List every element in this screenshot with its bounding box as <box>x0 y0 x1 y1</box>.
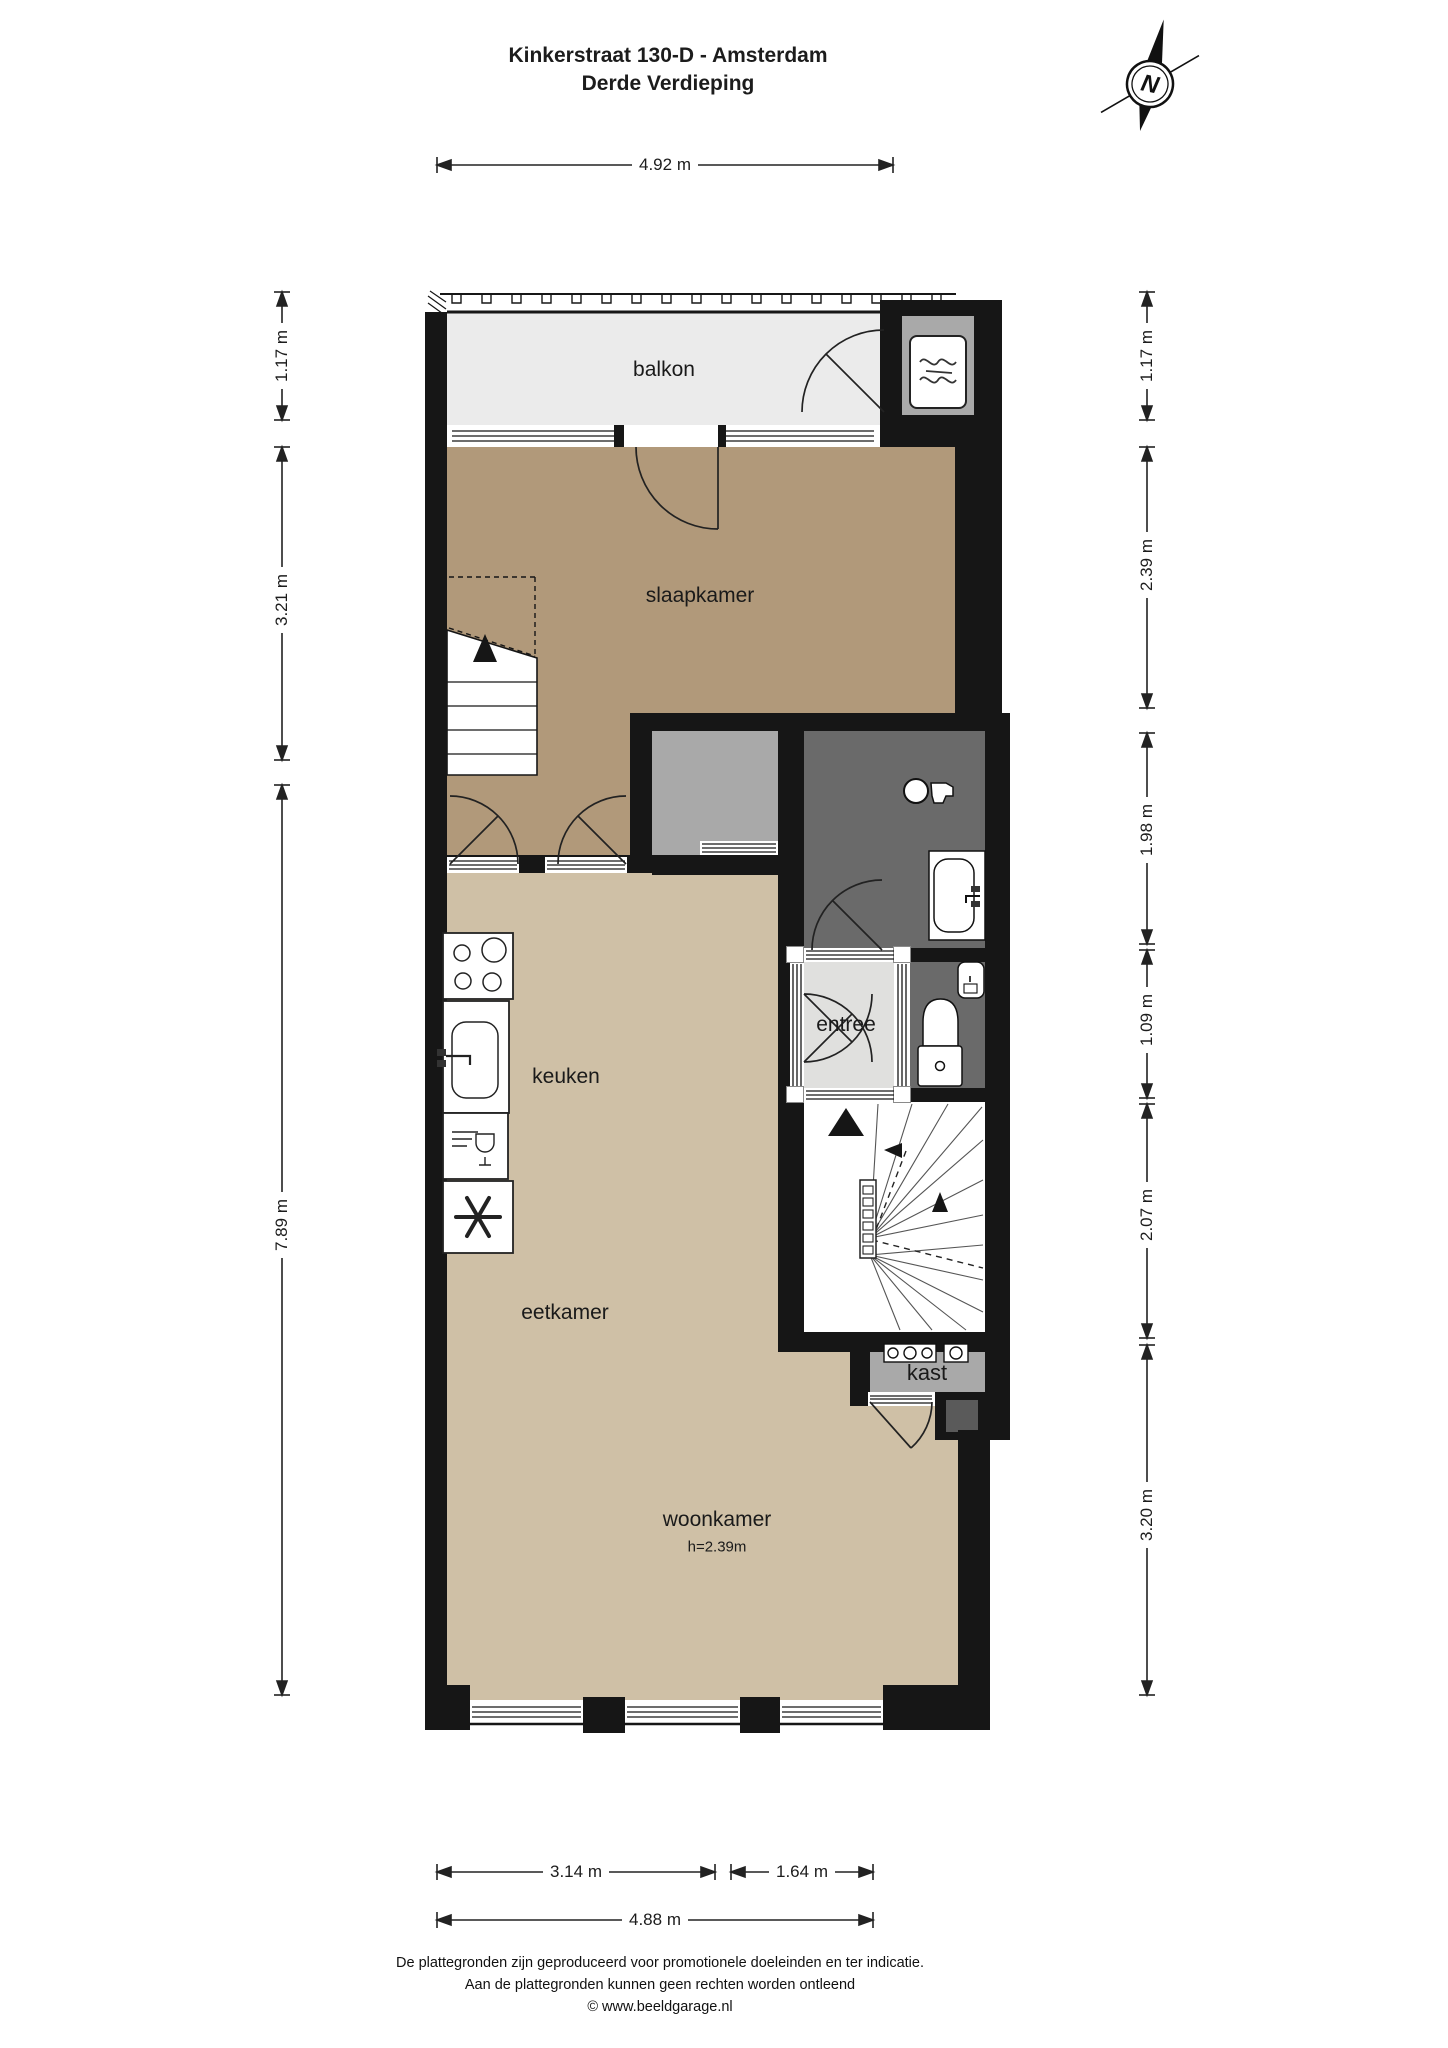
room-label-balkon: balkon <box>633 358 695 382</box>
dim-bottom-total: 4.88 m <box>622 1910 688 1930</box>
window-post <box>614 425 624 447</box>
wall <box>778 1102 804 1352</box>
glazed-door <box>447 857 519 873</box>
wall <box>896 948 1010 962</box>
window-post <box>718 425 726 447</box>
wall <box>630 713 652 873</box>
dim-right: 2.07 m <box>1137 1182 1157 1248</box>
glazed-door <box>894 962 910 1088</box>
title-floor: Derde Verdieping <box>368 70 968 98</box>
footer-disclaimer: De plattegronden zijn geproduceerd voor … <box>310 1952 1010 2018</box>
glazed-door <box>804 948 896 962</box>
wall <box>740 1697 780 1733</box>
compass-label: N <box>1139 69 1162 99</box>
glazed-door <box>545 857 627 873</box>
shower-closet-floor <box>652 731 778 855</box>
wall <box>425 312 447 1730</box>
wall <box>425 1685 470 1730</box>
footer-copyright: © www.beeldgarage.nl <box>310 1996 1010 2018</box>
wall <box>778 1332 1010 1352</box>
room-label-entree: entree <box>816 1013 876 1037</box>
floorplan-page: Kinkerstraat 130-D - Amsterdam Derde Ver… <box>0 0 1448 2048</box>
wall <box>778 731 804 948</box>
wall <box>896 1088 1010 1102</box>
stairwell-floor <box>804 1102 985 1332</box>
wall <box>630 713 1010 731</box>
dim-bottom-segment: 3.14 m <box>543 1862 609 1882</box>
window <box>780 1700 883 1726</box>
glazed-door <box>700 841 778 855</box>
window-post <box>893 946 911 963</box>
badkamer-floor <box>804 731 985 948</box>
woonkamer-floor <box>850 1406 935 1430</box>
window-post <box>893 1086 911 1103</box>
page-title: Kinkerstraat 130-D - Amsterdam Derde Ver… <box>368 42 968 98</box>
glazed-door <box>804 1088 896 1102</box>
toilet-floor <box>910 962 985 1088</box>
dim-left: 7.89 m <box>272 1192 292 1258</box>
room-label-woonkamer-height: h=2.39m <box>688 1539 747 1556</box>
dim-right: 1.09 m <box>1137 987 1157 1053</box>
window <box>470 1700 583 1726</box>
woonkamer-floor <box>778 1352 850 1430</box>
wall <box>778 962 790 1088</box>
wall <box>958 1430 990 1690</box>
slaapkamer-floor <box>447 447 955 713</box>
balkon-closet-floor <box>902 316 974 420</box>
dim-bottom-segment: 1.64 m <box>769 1862 835 1882</box>
room-label-eetkamer: eetkamer <box>521 1301 609 1325</box>
room-label-kast: kast <box>907 1360 947 1386</box>
dim-right: 1.17 m <box>1137 323 1157 389</box>
wall <box>985 731 1010 1352</box>
dim-left: 3.21 m <box>272 567 292 633</box>
wall <box>883 1685 990 1730</box>
window <box>447 425 880 447</box>
footer-line: De plattegronden zijn geproduceerd voor … <box>310 1952 1010 1974</box>
window-post <box>786 1086 804 1103</box>
window <box>625 1700 740 1726</box>
dim-left: 1.17 m <box>272 323 292 389</box>
wall <box>583 1697 625 1733</box>
slaapkamer-floor <box>447 713 630 855</box>
dim-right: 2.39 m <box>1137 532 1157 598</box>
dim-right: 1.98 m <box>1137 797 1157 863</box>
room-label-keuken: keuken <box>532 1065 600 1089</box>
shaft <box>946 1400 978 1432</box>
glazed-door <box>868 1392 934 1406</box>
north-compass-icon: N <box>1099 11 1205 140</box>
dim-top: 4.92 m <box>632 155 698 175</box>
glazed-door <box>790 962 804 1088</box>
woonkamer-floor <box>447 1430 958 1700</box>
wall <box>880 312 902 420</box>
window-post <box>786 946 804 963</box>
footer-line: Aan de plattegronden kunnen geen rechten… <box>310 1974 1010 1996</box>
dim-right: 3.20 m <box>1137 1482 1157 1548</box>
title-address: Kinkerstraat 130-D - Amsterdam <box>368 42 968 70</box>
woonkamer-floor <box>447 1340 778 1430</box>
room-label-slaapkamer: slaapkamer <box>646 584 755 608</box>
wall <box>955 440 1002 731</box>
room-label-woonkamer: woonkamer <box>663 1508 772 1532</box>
wall <box>974 300 1002 425</box>
wall <box>985 1352 1010 1392</box>
wall <box>850 1352 870 1406</box>
eetkamer-woonkamer-floor <box>447 873 778 1340</box>
